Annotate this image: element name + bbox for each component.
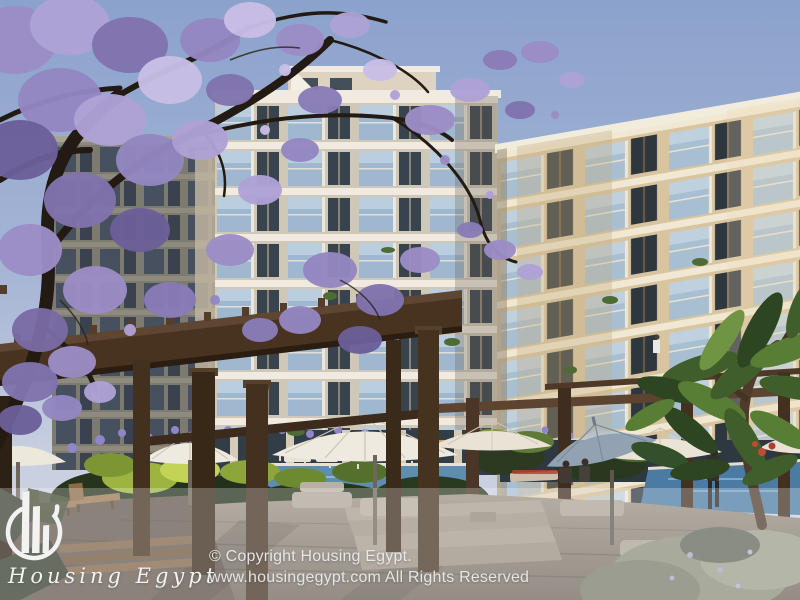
brand-script-text: Housing Egypt <box>8 564 178 588</box>
copyright-line2: www.housingegypt.com All Rights Reserved <box>209 567 529 588</box>
copyright-text: © Copyright Housing Egypt. www.housingeg… <box>209 546 529 588</box>
buildings-in-circle-icon <box>8 491 60 558</box>
photo-canvas: Housing Egypt © Copyright Housing Egypt.… <box>0 0 800 600</box>
copyright-line1: © Copyright Housing Egypt. <box>209 546 529 567</box>
watermark-band: Housing Egypt © Copyright Housing Egypt.… <box>0 488 800 600</box>
